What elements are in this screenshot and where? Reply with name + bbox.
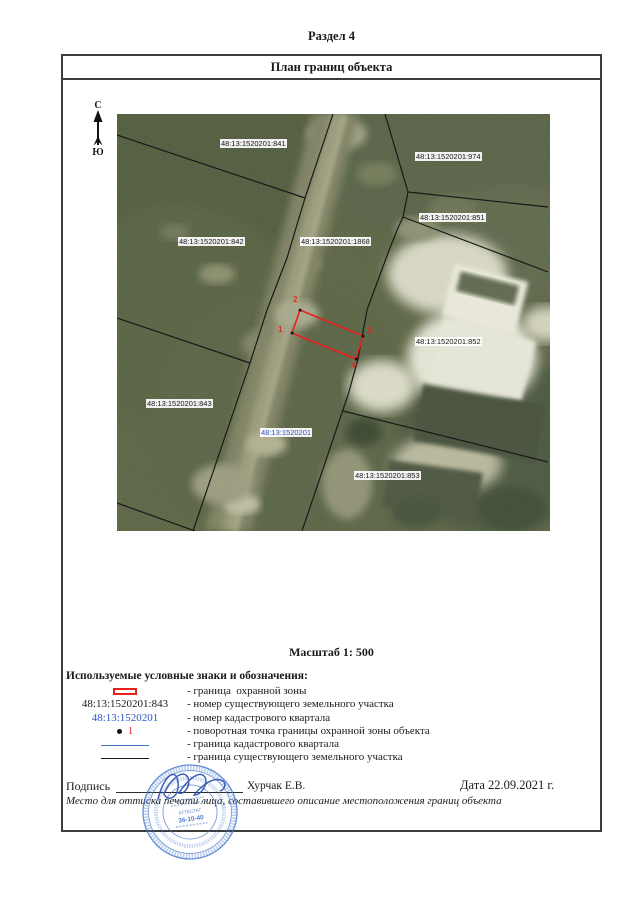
legend-symbol-turn-point: 1 (60, 725, 190, 738)
parcel-label-841: 48:13:1520201:841 (220, 139, 287, 148)
legend-symbol-quarter-boundary (60, 739, 190, 752)
vertex-label-4: 4 (351, 362, 355, 370)
parcel-label-974: 48:13:1520201:974 (415, 152, 482, 161)
section-title: Раздел 4 (61, 29, 602, 44)
scale-label: Масштаб 1: 500 (61, 645, 602, 660)
legend-desc-parcel-number: - номер существующего земельного участка (187, 698, 394, 711)
parcel-label-842: 48:13:1520201:842 (178, 237, 245, 246)
date-label: Дата 22.09.2021 г. (460, 778, 554, 793)
blue-line-icon (101, 745, 149, 746)
point-number: 1 (128, 725, 134, 737)
parcel-label-851: 48:13:1520201:851 (419, 213, 486, 222)
red-rect-icon (113, 688, 137, 695)
legend-desc-quarter-boundary: - граница кадастрового квартала (187, 738, 339, 751)
signer-name: Хурчак Е.В. (247, 780, 305, 792)
document-page: Раздел 4 План границ объекта С Ю (0, 0, 640, 905)
parcel-label-1868: 48:13:1520201:1868 (300, 237, 371, 246)
parcel-label-853: 48:13:1520201:853 (354, 471, 421, 480)
compass-south-label: Ю (87, 147, 109, 158)
legend-desc-protection-zone: - граница охранной зоны (187, 685, 306, 698)
vertex-label-1: 1 (278, 326, 282, 334)
point-dot-icon (117, 729, 122, 734)
boundary-plan-map: 48:13:1520201:841 48:13:1520201:974 48:1… (117, 114, 550, 531)
legend-desc-turn-point: - поворотная точка границы охранной зоны… (187, 725, 430, 738)
round-seal: АТТЕСТАТ 36-10-40 (130, 755, 254, 872)
aerial-photo (117, 114, 550, 531)
parcel-label-843: 48:13:1520201:843 (146, 399, 213, 408)
vertex-label-2: 2 (293, 296, 297, 304)
parcel-label-852: 48:13:1520201:852 (415, 337, 482, 346)
signature-label: Подпись (66, 779, 110, 794)
legend-heading: Используемые условные знаки и обозначени… (66, 670, 308, 682)
vertex-label-3: 3 (367, 327, 371, 335)
legend-symbol-parcel-number: 48:13:1520201:843 (60, 698, 190, 711)
plan-title: План границ объекта (61, 54, 602, 80)
legend-symbol-protection-zone (60, 685, 190, 698)
legend-desc-quarter-number: - номер кадастрового квартала (187, 712, 330, 725)
quarter-label: 48:13:1520201 (260, 428, 312, 437)
legend-symbol-quarter-number: 48:13:1520201 (60, 712, 190, 725)
